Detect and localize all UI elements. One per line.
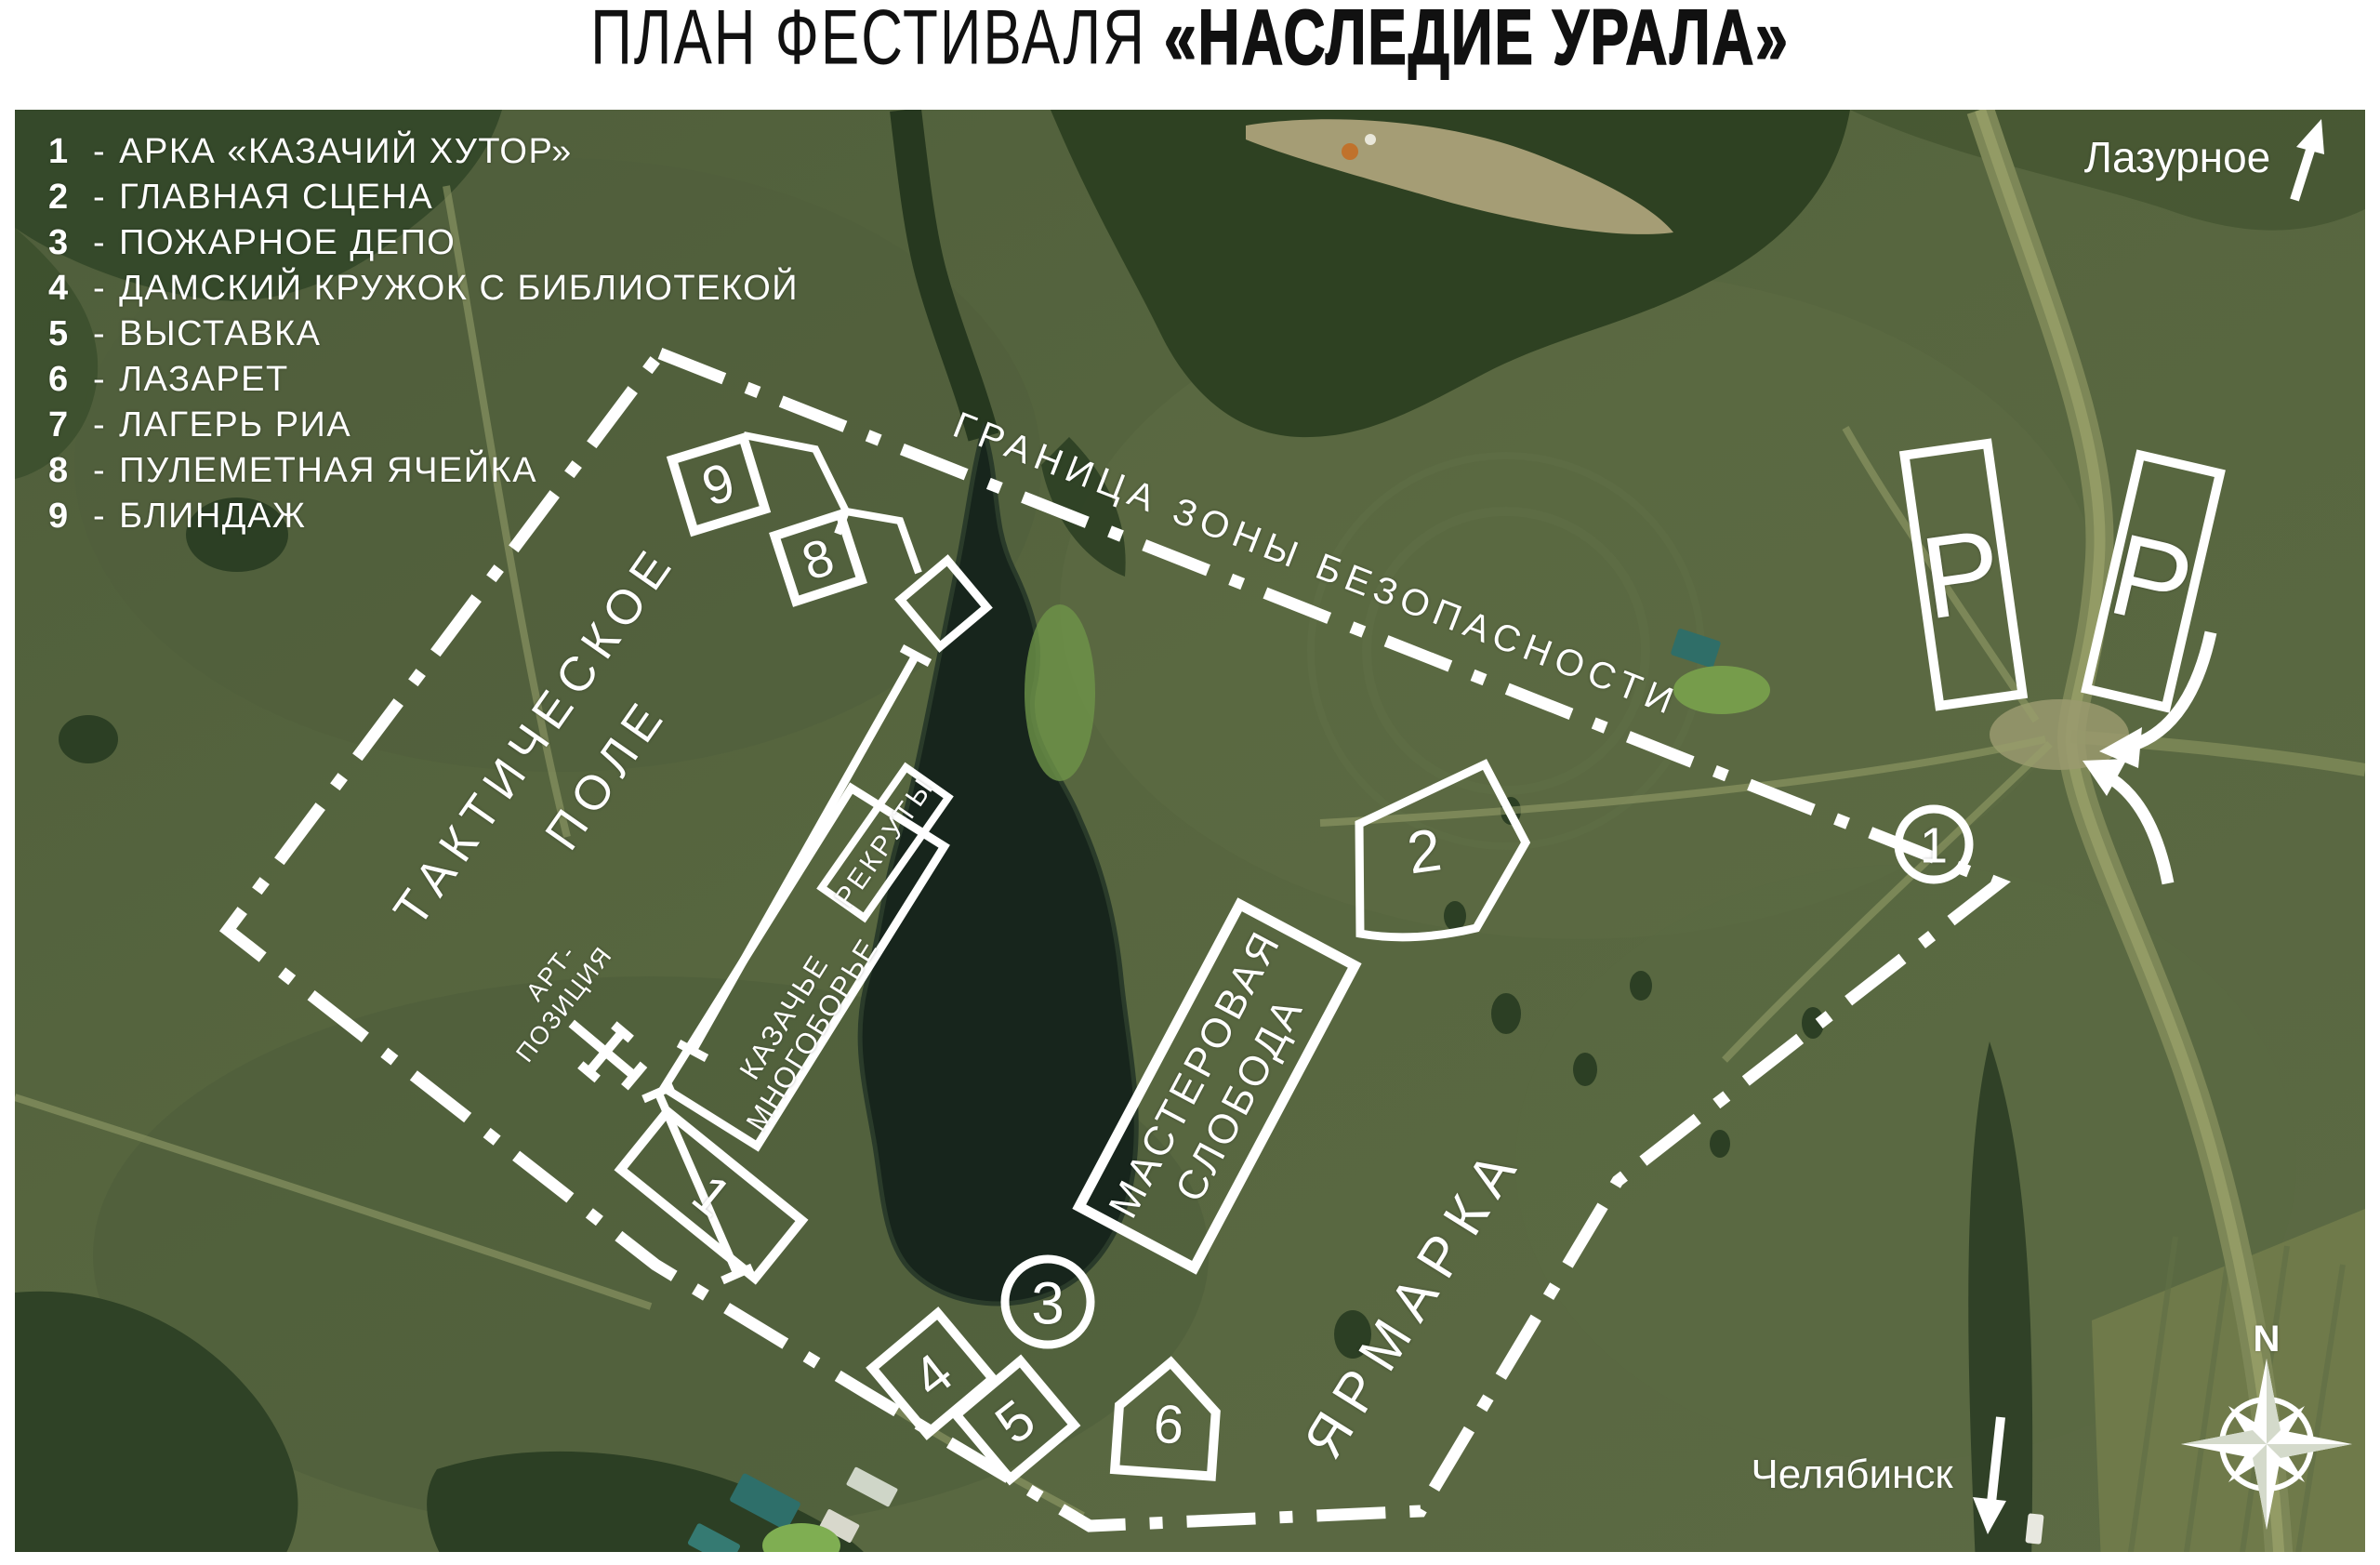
legend-label: БЛИНДАЖ xyxy=(119,497,306,537)
legend-item-8: 8-ПУЛЕМЕТНАЯ ЯЧЕЙКА xyxy=(48,451,799,497)
legend-num: 6 xyxy=(48,360,80,400)
legend-label: ДАМСКИЙ КРУЖОК С БИБЛИОТЕКОЙ xyxy=(119,269,799,309)
legend-separator: - xyxy=(80,314,119,354)
legend-label: ПОЖАРНОЕ ДЕПО xyxy=(119,223,456,263)
city-label-lazurnoye: Лазурное xyxy=(2084,135,2270,179)
legend-num: 2 xyxy=(48,178,80,218)
city-label-chelyabinsk: Челябинск xyxy=(1751,1453,1952,1496)
marker-1-entrance: 1 xyxy=(1920,820,1948,873)
excavator xyxy=(1342,143,1358,160)
truck-top xyxy=(1365,134,1376,145)
legend-separator: - xyxy=(80,223,119,263)
legend-num: 1 xyxy=(48,132,80,172)
junction-dirt xyxy=(1990,699,2129,770)
legend-num: 9 xyxy=(48,497,80,537)
legend-separator: - xyxy=(80,497,119,537)
legend-num: 3 xyxy=(48,223,80,263)
legend-separator: - xyxy=(80,178,119,218)
legend-separator: - xyxy=(80,405,119,445)
legend-separator: - xyxy=(80,451,119,491)
legend-label: ВЫСТАВКА xyxy=(119,314,321,354)
festival-plan-poster: ПЛАН ФЕСТИВАЛЯ «НАСЛЕДИЕ УРАЛА» xyxy=(0,0,2380,1565)
legend-separator: - xyxy=(80,360,119,400)
legend-separator: - xyxy=(80,132,119,172)
legend-num: 7 xyxy=(48,405,80,445)
legend-num: 5 xyxy=(48,314,80,354)
marker-3: 3 xyxy=(1031,1272,1064,1334)
legend-item-7: 7-ЛАГЕРЬ РИА xyxy=(48,405,799,451)
legend-item-6: 6-ЛАЗАРЕТ xyxy=(48,360,799,405)
legend-item-1: 1-АРКА «КАЗАЧИЙ ХУТОР» xyxy=(48,132,799,178)
bog-patch xyxy=(1025,604,1095,781)
legend: 1-АРКА «КАЗАЧИЙ ХУТОР» 2-ГЛАВНАЯ СЦЕНА 3… xyxy=(48,132,799,542)
legend-num: 8 xyxy=(48,451,80,491)
legend-num: 4 xyxy=(48,269,80,309)
legend-separator: - xyxy=(80,269,119,309)
legend-label: ГЛАВНАЯ СЦЕНА xyxy=(119,178,433,218)
legend-label: АРКА «КАЗАЧИЙ ХУТОР» xyxy=(119,132,573,172)
legend-item-5: 5-ВЫСТАВКА xyxy=(48,314,799,360)
marker-6: 6 xyxy=(1152,1397,1185,1455)
legend-item-3: 3-ПОЖАРНОЕ ДЕПО xyxy=(48,223,799,269)
legend-item-2: 2-ГЛАВНАЯ СЦЕНА xyxy=(48,178,799,223)
legend-item-4: 4-ДАМСКИЙ КРУЖОК С БИБЛИОТЕКОЙ xyxy=(48,269,799,314)
compass-north-label: N xyxy=(2254,1320,2281,1359)
legend-label: ЛАГЕРЬ РИА xyxy=(119,405,351,445)
legend-label: ПУЛЕМЕТНАЯ ЯЧЕЙКА xyxy=(119,451,537,491)
legend-label: ЛАЗАРЕТ xyxy=(119,360,289,400)
legend-item-9: 9-БЛИНДАЖ xyxy=(48,497,799,542)
